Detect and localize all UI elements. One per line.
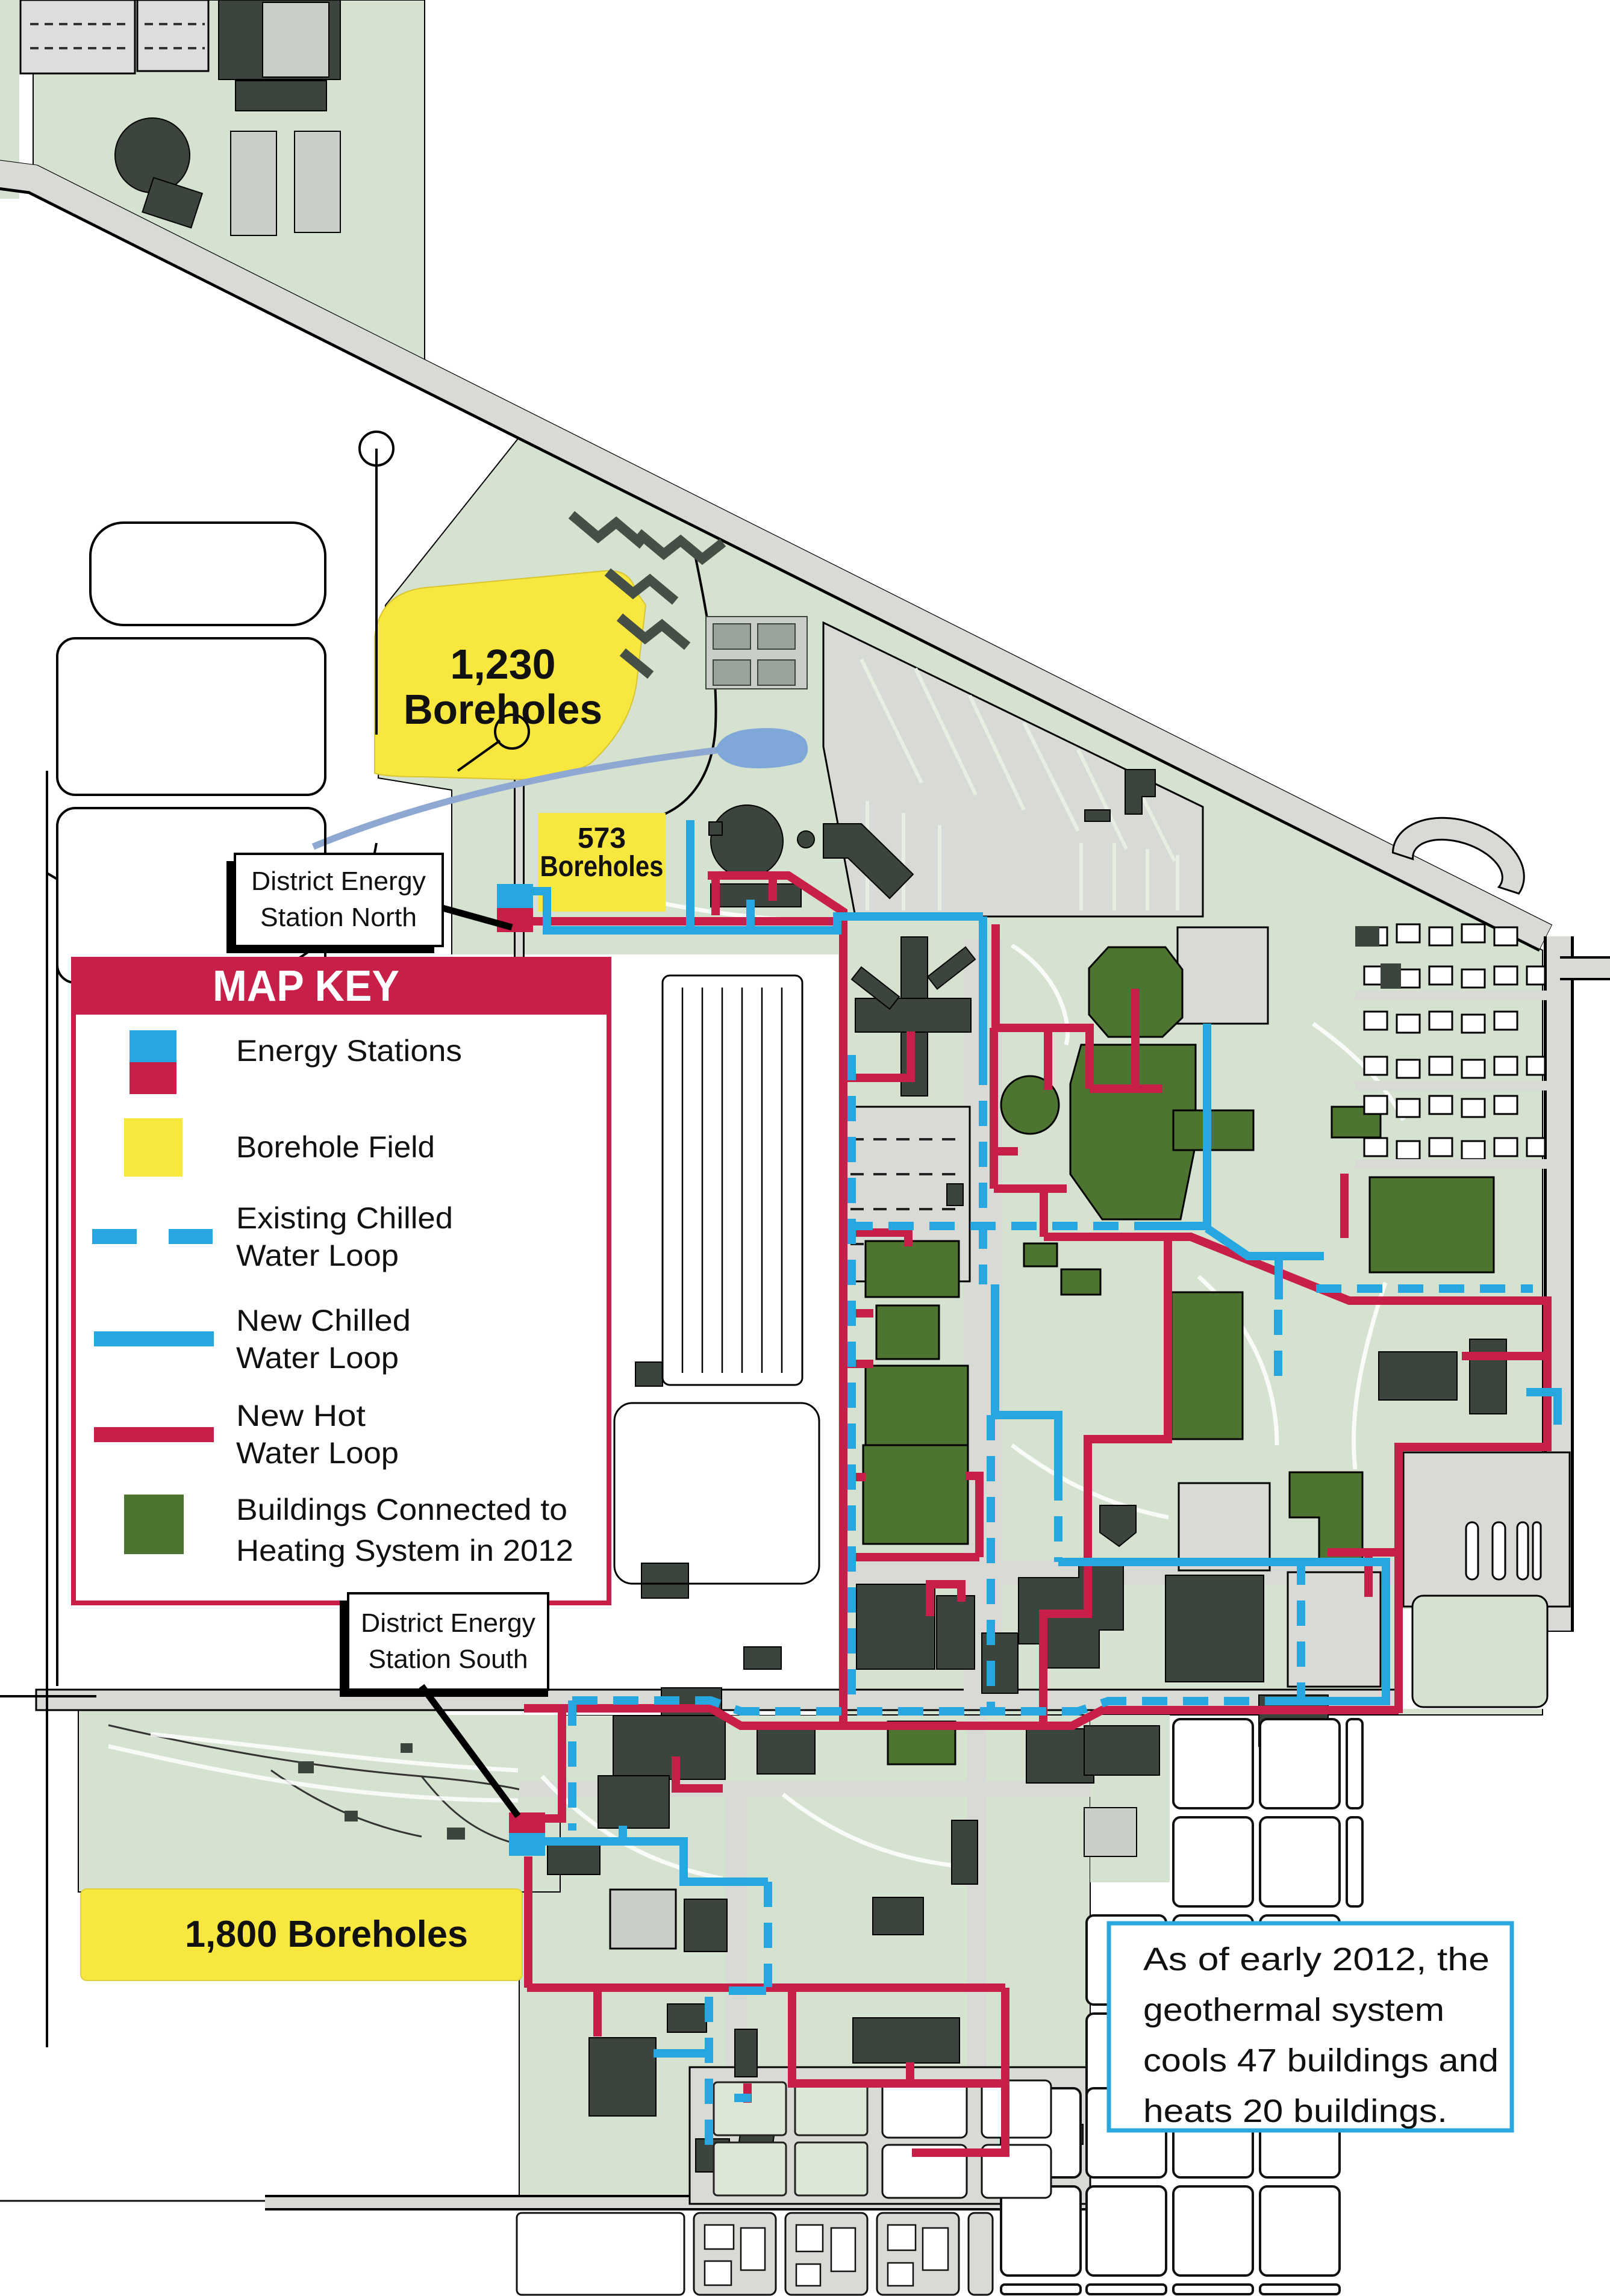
- svg-text:1,230: 1,230: [450, 641, 555, 688]
- svg-text:New Chilled: New Chilled: [236, 1304, 411, 1337]
- svg-text:District Energy: District Energy: [361, 1608, 535, 1638]
- svg-text:Boreholes: Boreholes: [540, 851, 664, 883]
- svg-text:geothermal system: geothermal system: [1143, 1992, 1444, 2028]
- svg-text:heats 20 buildings.: heats 20 buildings.: [1143, 2093, 1447, 2129]
- svg-text:Heating System in 2012: Heating System in 2012: [236, 1534, 573, 1567]
- svg-text:Station South: Station South: [369, 1644, 528, 1674]
- svg-text:Water Loop: Water Loop: [236, 1341, 399, 1375]
- svg-text:Station North: Station North: [260, 903, 417, 932]
- svg-text:Boreholes: Boreholes: [404, 686, 602, 733]
- svg-text:Existing Chilled: Existing Chilled: [236, 1201, 453, 1235]
- svg-text:Borehole Field: Borehole Field: [236, 1130, 435, 1164]
- svg-text:Buildings Connected to: Buildings Connected to: [236, 1493, 567, 1526]
- svg-text:573: 573: [578, 823, 626, 854]
- svg-text:Water Loop: Water Loop: [236, 1239, 399, 1272]
- svg-text:MAP KEY: MAP KEY: [213, 962, 399, 1010]
- svg-text:cools 47 buildings and: cools 47 buildings and: [1143, 2042, 1499, 2079]
- svg-text:Water Loop: Water Loop: [236, 1436, 399, 1470]
- svg-text:As of early 2012, the: As of early 2012, the: [1143, 1941, 1490, 1977]
- svg-text:District Energy: District Energy: [251, 866, 426, 896]
- svg-text:Energy Stations: Energy Stations: [236, 1034, 462, 1068]
- svg-text:1,800 Boreholes: 1,800 Boreholes: [185, 1914, 468, 1955]
- svg-text:New Hot: New Hot: [236, 1399, 366, 1433]
